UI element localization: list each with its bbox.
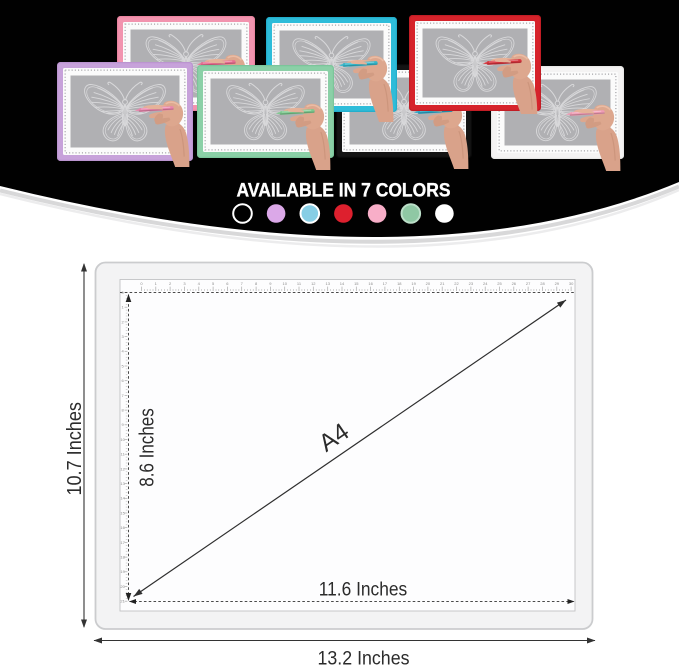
- svg-text:23: 23: [469, 281, 474, 286]
- svg-text:24: 24: [483, 281, 488, 286]
- svg-text:29: 29: [555, 281, 560, 286]
- svg-text:21: 21: [440, 281, 445, 286]
- svg-text:14: 14: [340, 281, 345, 286]
- svg-text:20: 20: [426, 281, 431, 286]
- svg-text:27: 27: [526, 281, 531, 286]
- svg-text:15: 15: [354, 281, 359, 286]
- svg-text:17: 17: [383, 281, 388, 286]
- svg-text:10: 10: [282, 281, 287, 286]
- svg-text:30: 30: [569, 281, 574, 286]
- svg-text:16: 16: [368, 281, 373, 286]
- svg-text:13.2 Inches: 13.2 Inches: [318, 647, 410, 665]
- svg-text:28: 28: [540, 281, 545, 286]
- svg-text:10.7 Inches: 10.7 Inches: [64, 402, 86, 496]
- svg-text:25: 25: [497, 281, 502, 286]
- svg-text:12: 12: [311, 281, 316, 286]
- svg-text:11.6 Inches: 11.6 Inches: [319, 579, 408, 601]
- svg-text:19: 19: [411, 281, 416, 286]
- svg-text:26: 26: [512, 281, 517, 286]
- svg-text:13: 13: [325, 281, 330, 286]
- svg-text:8.6 Inches: 8.6 Inches: [137, 408, 159, 487]
- svg-text:AVAILABLE IN 7 COLORS: AVAILABLE IN 7 COLORS: [237, 180, 451, 202]
- svg-text:22: 22: [454, 281, 459, 286]
- svg-text:18: 18: [397, 281, 402, 286]
